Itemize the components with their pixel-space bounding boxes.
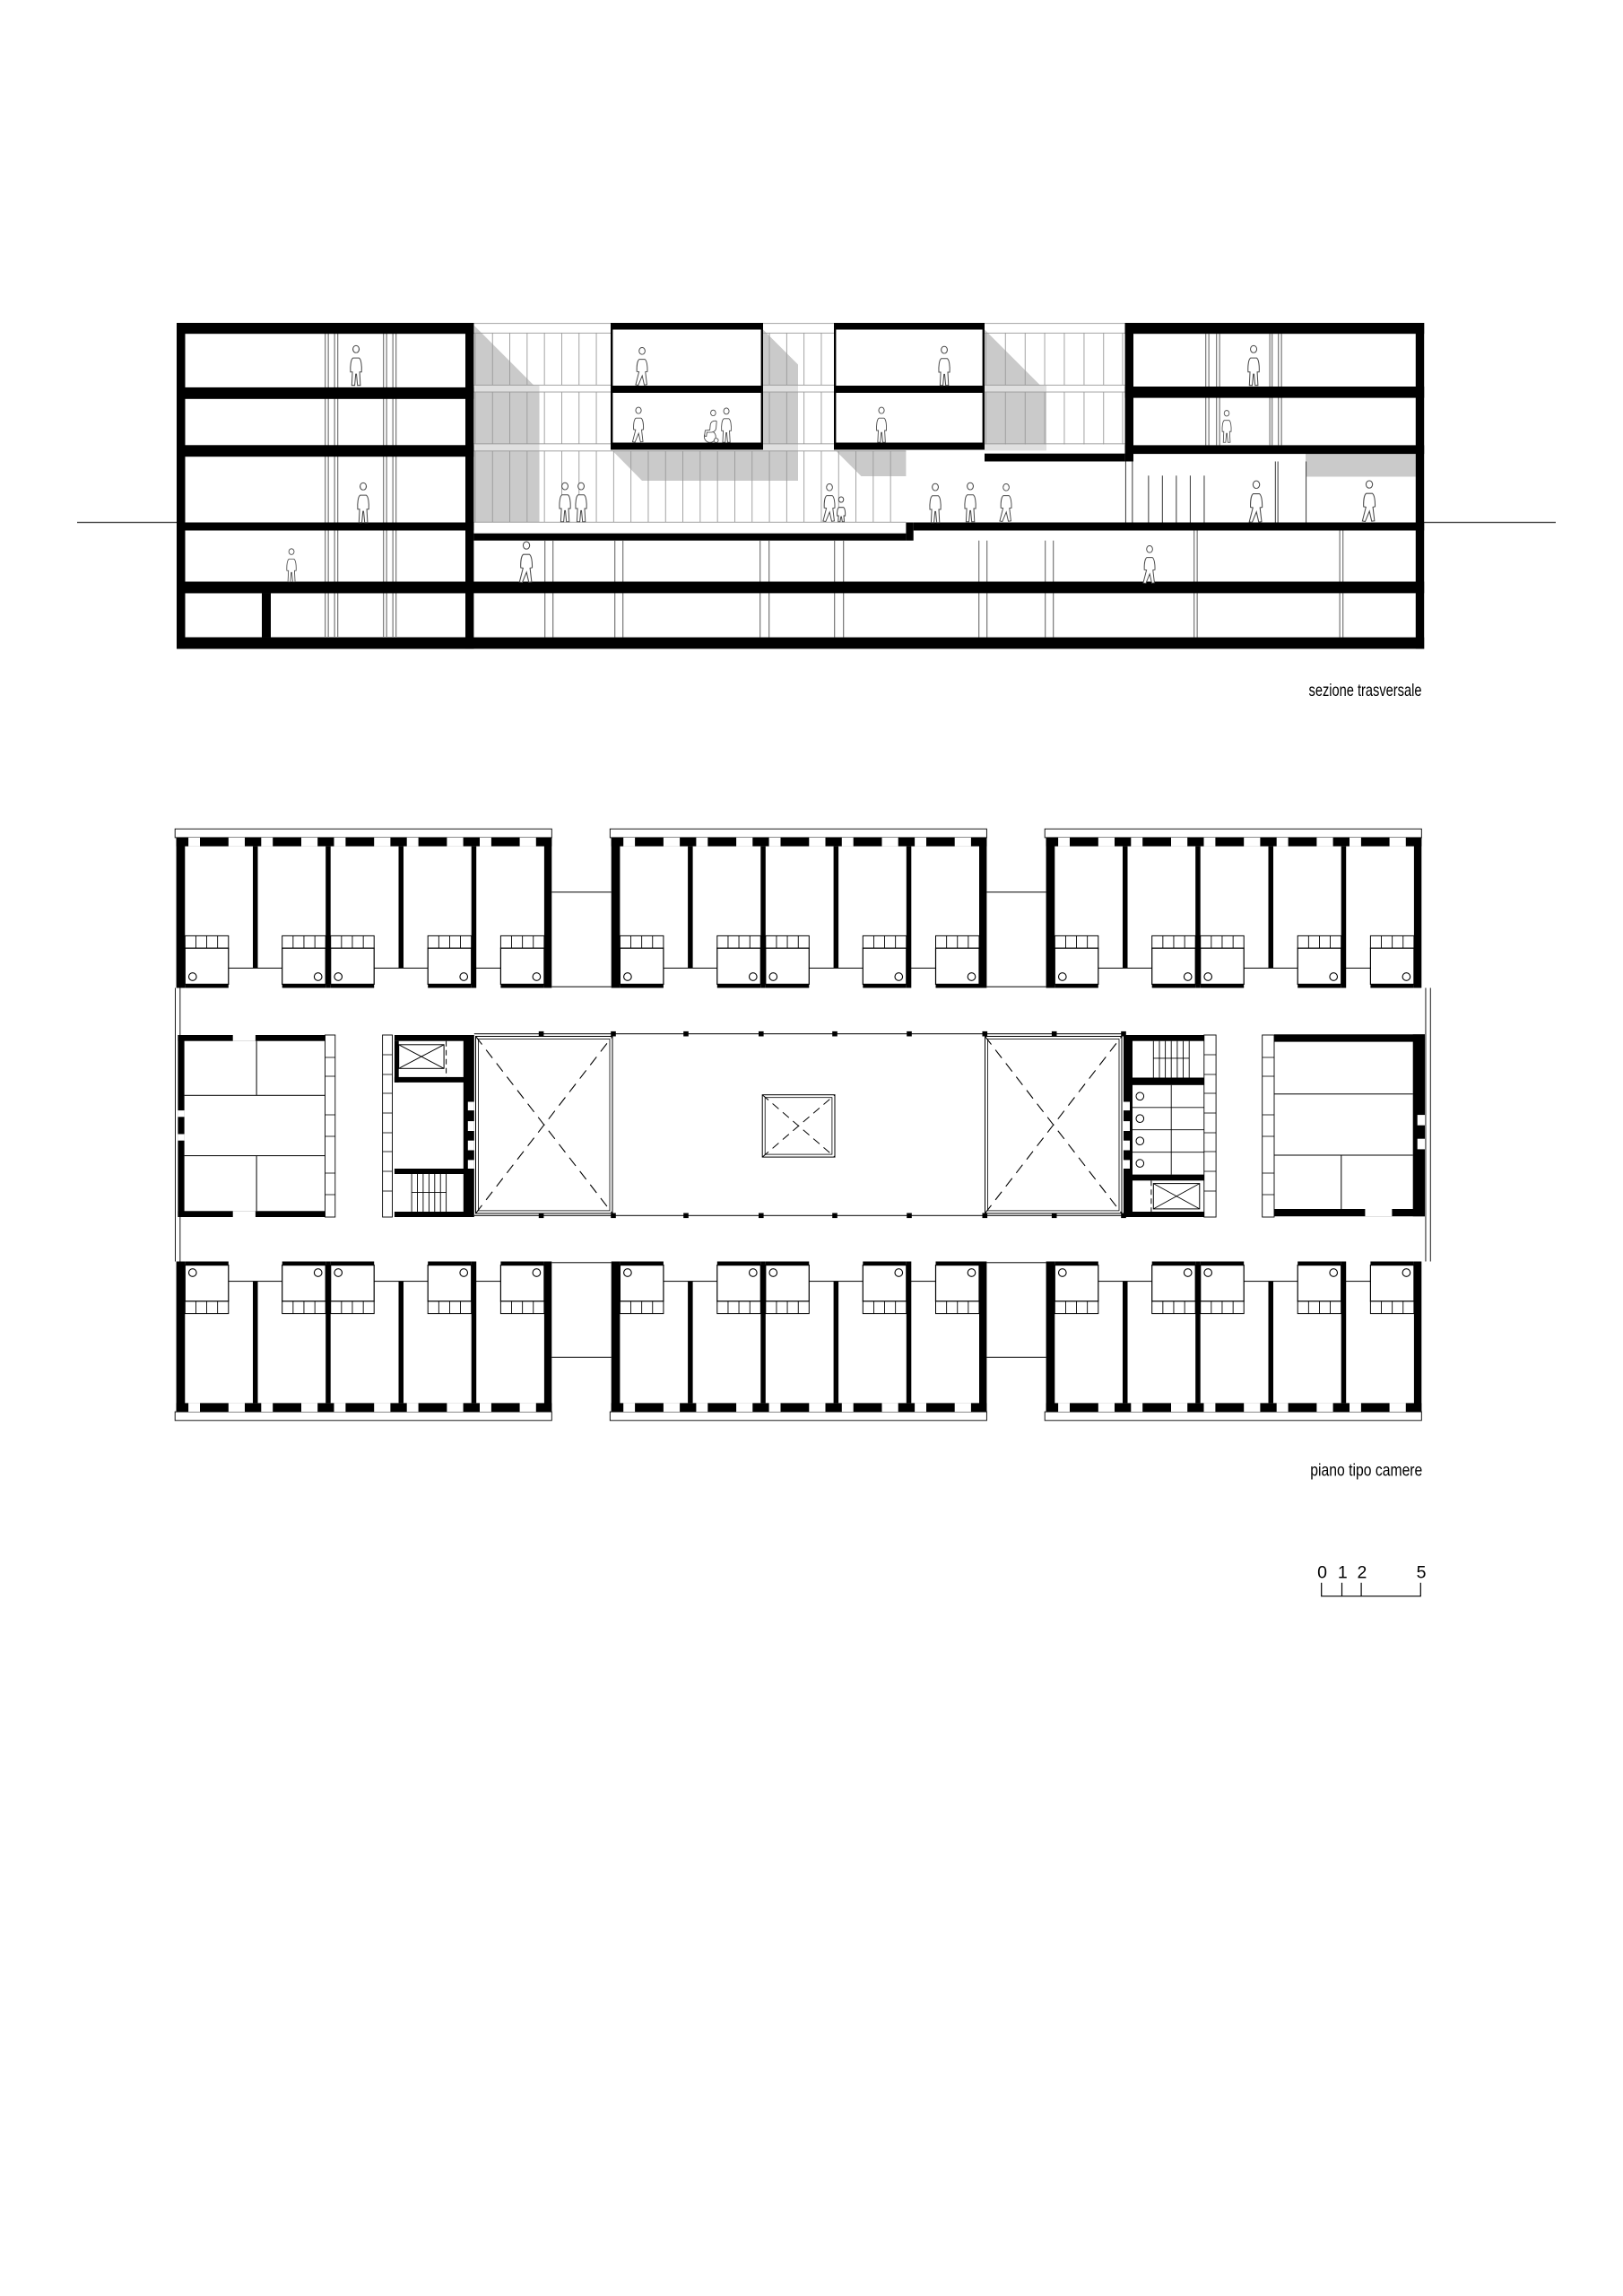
svg-text:1: 1 [1338,1563,1348,1583]
svg-text:sezione trasversale: sezione trasversale [1309,681,1422,700]
svg-text:0: 0 [1317,1563,1327,1583]
svg-text:2: 2 [1357,1563,1367,1583]
svg-text:5: 5 [1417,1563,1427,1583]
svg-text:piano tipo camere: piano tipo camere [1310,1461,1422,1481]
